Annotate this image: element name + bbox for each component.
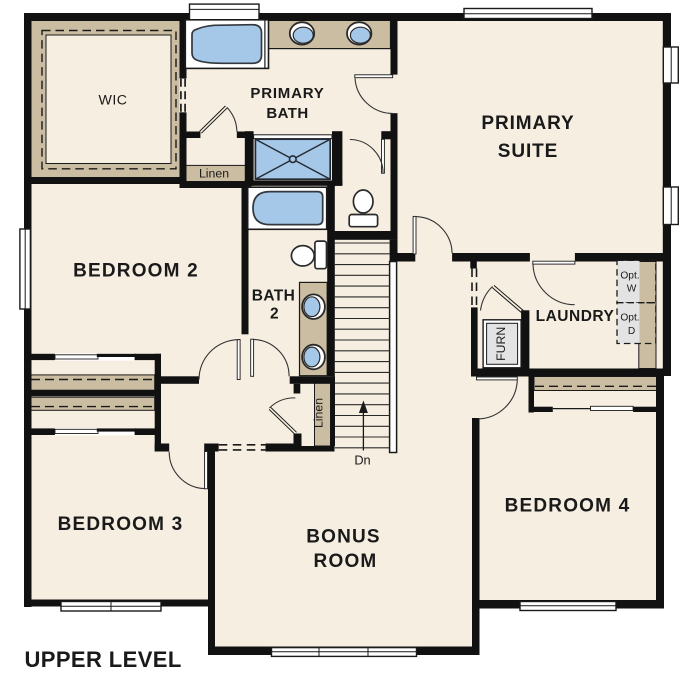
svg-text:Linen: Linen	[312, 398, 326, 428]
svg-text:ROOM: ROOM	[314, 551, 378, 572]
svg-text:Linen: Linen	[199, 167, 229, 181]
svg-text:BATH: BATH	[266, 105, 308, 122]
svg-text:Dn: Dn	[354, 453, 370, 468]
svg-text:2: 2	[270, 305, 279, 322]
svg-text:D: D	[628, 326, 635, 337]
svg-text:BEDROOM 3: BEDROOM 3	[58, 514, 184, 535]
svg-text:BEDROOM 4: BEDROOM 4	[505, 496, 631, 517]
svg-text:WIC: WIC	[98, 93, 127, 109]
svg-text:PRIMARY: PRIMARY	[250, 85, 324, 102]
svg-text:BATH: BATH	[252, 287, 296, 304]
svg-text:BONUS: BONUS	[306, 526, 381, 547]
svg-text:BEDROOM 2: BEDROOM 2	[73, 260, 199, 281]
svg-text:UPPER LEVEL: UPPER LEVEL	[25, 647, 182, 672]
svg-text:PRIMARY: PRIMARY	[481, 113, 574, 134]
svg-text:W: W	[627, 284, 637, 295]
svg-text:FURN: FURN	[494, 327, 508, 361]
svg-text:SUITE: SUITE	[498, 141, 558, 162]
svg-text:Opt.: Opt.	[620, 271, 639, 282]
svg-text:Opt.: Opt.	[620, 313, 639, 324]
svg-text:LAUNDRY: LAUNDRY	[536, 308, 615, 325]
